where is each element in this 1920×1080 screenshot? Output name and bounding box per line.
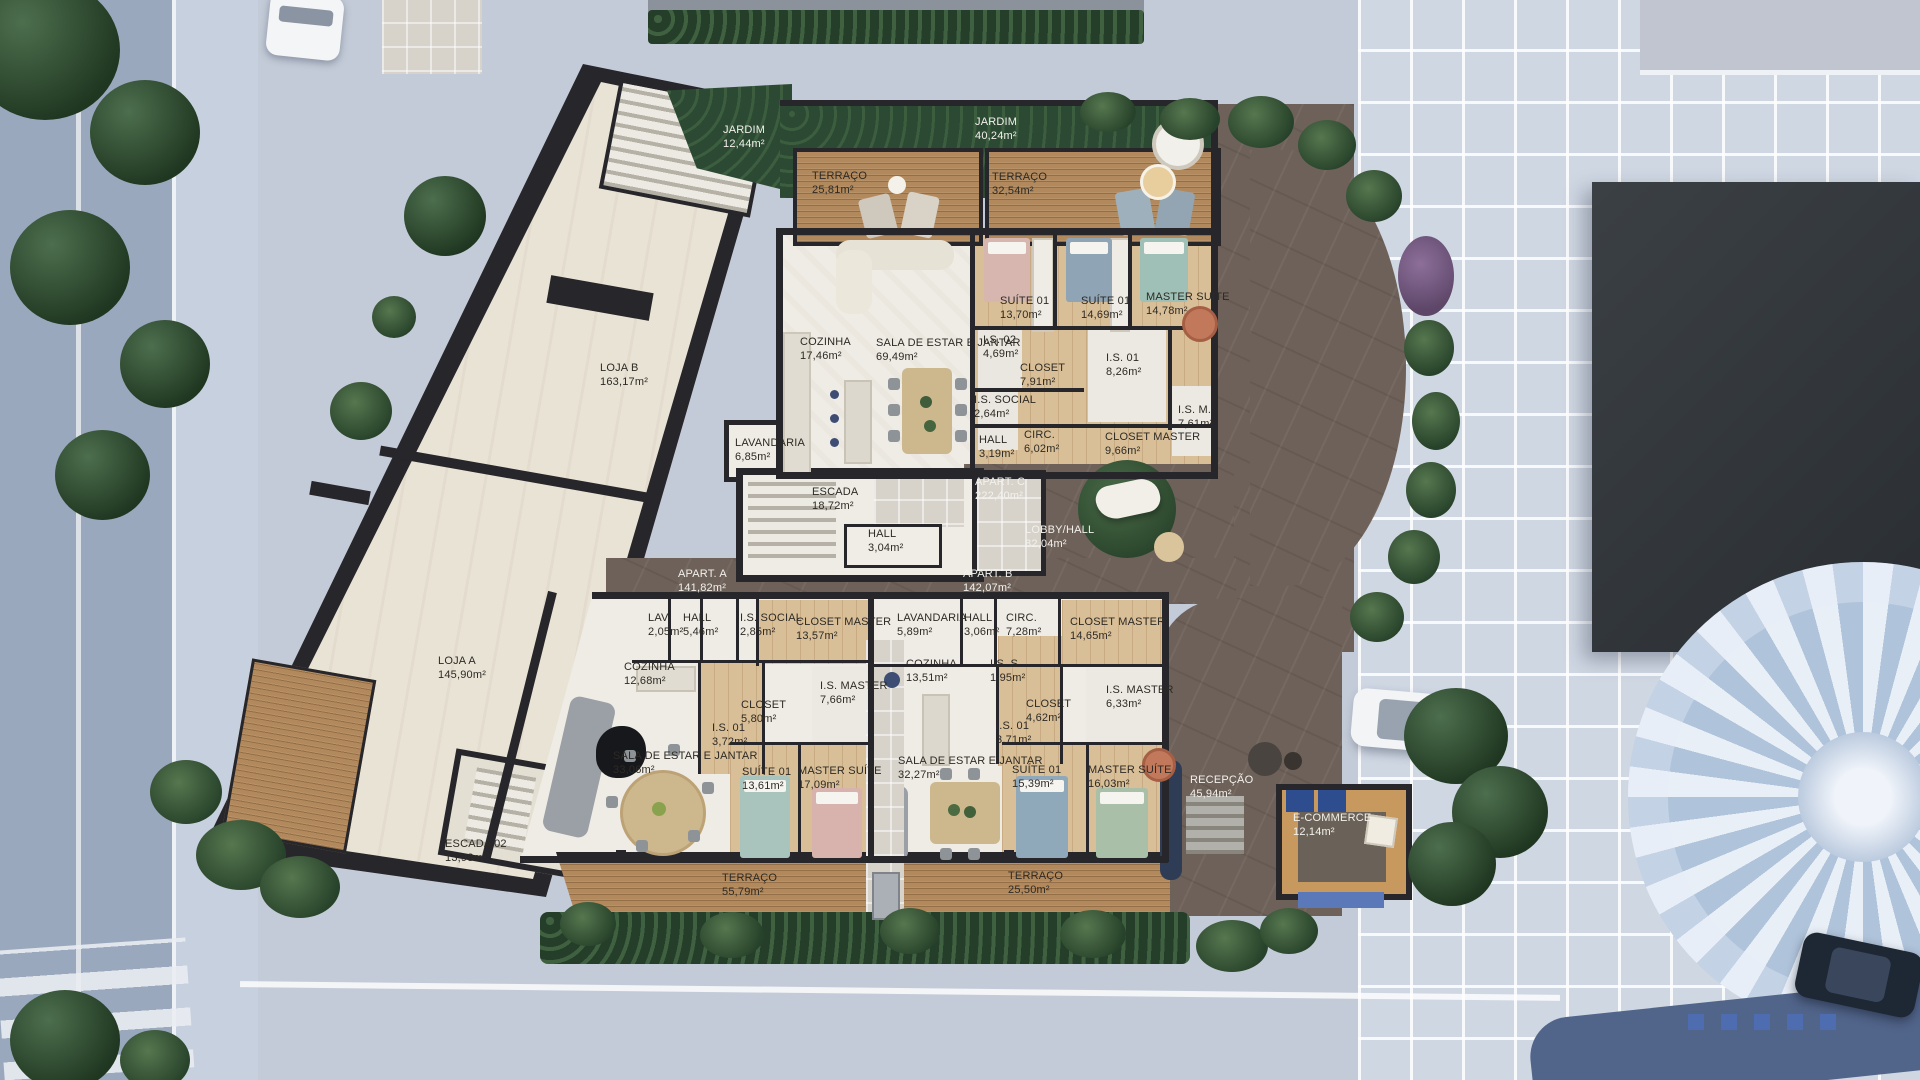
core-gray-room bbox=[874, 477, 964, 527]
deck-post bbox=[1004, 850, 1014, 862]
floor-plan-scene: JARDIM12,44m² TERRAÇO25,81m² JARDIM40,24… bbox=[0, 0, 1920, 1080]
wall bbox=[1086, 742, 1089, 860]
bush bbox=[1080, 92, 1136, 132]
bed-suite01-c bbox=[984, 238, 1030, 302]
chair bbox=[940, 848, 952, 860]
bush bbox=[1388, 530, 1440, 584]
room-label-hall-b: HALL3,06m² bbox=[964, 612, 999, 640]
bush bbox=[1412, 392, 1460, 450]
room-label-closet-master-a: CLOSET MASTER13,57m² bbox=[796, 616, 891, 644]
table-plant bbox=[948, 804, 960, 816]
tree bbox=[120, 320, 210, 408]
top-hedge bbox=[648, 10, 1144, 44]
blue-mat bbox=[1318, 790, 1346, 812]
room-label-ecommerce: E-COMMERCE12,14m² bbox=[1293, 812, 1371, 840]
car-roof bbox=[1824, 946, 1892, 1003]
bush bbox=[560, 902, 616, 946]
room-label-closet-master-b: CLOSET MASTER14,65m² bbox=[1070, 616, 1165, 644]
room-label-lavandaria-c: LAVANDARIA6,85m² bbox=[735, 437, 805, 465]
bush bbox=[1196, 920, 1268, 972]
wall bbox=[776, 228, 1218, 235]
room-label-closet-b: CLOSET4,62m² bbox=[1026, 698, 1071, 726]
chair bbox=[702, 782, 714, 794]
chair bbox=[955, 430, 967, 442]
room-label-is01-a: I.S. 013,72m² bbox=[712, 722, 747, 750]
room-label-is-master-a: I.S. MASTER7,66m² bbox=[820, 680, 888, 708]
palm-tree bbox=[1408, 822, 1496, 906]
tree bbox=[10, 210, 130, 325]
room-label-is-s-b: I.S. S.1,95m² bbox=[990, 658, 1025, 686]
room-label-sala-a: SALA DE ESTAR E JANTAR33,06m² bbox=[613, 750, 758, 778]
room-label-is01-b: I.S. 013,71m² bbox=[996, 720, 1031, 748]
chair bbox=[688, 830, 700, 842]
kitchen-island bbox=[844, 380, 872, 464]
room-label-hall-core: HALL3,04m² bbox=[868, 528, 903, 556]
bush bbox=[880, 908, 940, 954]
car-windshield bbox=[278, 5, 333, 27]
entry-mat-blue bbox=[1298, 892, 1384, 908]
bush bbox=[1298, 120, 1356, 170]
mandala-center bbox=[1798, 732, 1920, 862]
room-label-lav-a: LAV.2,05m² bbox=[648, 612, 683, 640]
room-label-terraco-top-left: TERRAÇO25,81m² bbox=[812, 170, 867, 198]
room-label-suite01b-c: SUÍTE 0114,69m² bbox=[1081, 295, 1130, 323]
bush bbox=[700, 912, 764, 958]
room-label-recepcao: RECEPÇÃO45,94m² bbox=[1190, 774, 1253, 802]
chair bbox=[888, 378, 900, 390]
unit-label-loja-a: LOJA A145,90m² bbox=[438, 655, 486, 683]
room-label-terraco-bottom-right: TERRAÇO25,50m² bbox=[1008, 870, 1063, 898]
wall bbox=[1168, 330, 1172, 430]
recepcao-chair bbox=[1284, 752, 1302, 770]
wall bbox=[736, 596, 739, 662]
room-label-hall-c: HALL3,19m² bbox=[979, 434, 1014, 462]
room-label-is01-c: I.S. 018,26m² bbox=[1106, 352, 1141, 380]
tree bbox=[10, 990, 120, 1080]
room-label-lavandaria-b: LAVANDARIA5,89m² bbox=[897, 612, 967, 640]
bush bbox=[372, 296, 416, 338]
tree bbox=[55, 430, 150, 520]
bed-suite01b-c bbox=[1066, 238, 1112, 302]
dining-table-c bbox=[902, 368, 952, 454]
bush bbox=[1404, 320, 1454, 376]
table-plant bbox=[964, 806, 976, 818]
bush bbox=[330, 382, 392, 440]
stool bbox=[830, 438, 839, 447]
room-label-is02-c: I.S. 024,69m² bbox=[983, 334, 1018, 362]
street-lane-line bbox=[76, 0, 81, 1080]
wall bbox=[798, 742, 801, 860]
bush bbox=[1350, 592, 1404, 642]
tree bbox=[90, 80, 200, 185]
table-plant bbox=[924, 420, 936, 432]
room-label-cozinha-b: COZINHA13,51m² bbox=[906, 658, 957, 686]
room-label-terraco-top-right: TERRAÇO32,54m² bbox=[992, 171, 1047, 199]
room-label-is-social-c: I.S. SOCIAL2,64m² bbox=[974, 394, 1036, 422]
roof-top-right-corner bbox=[1640, 0, 1920, 75]
chair bbox=[888, 430, 900, 442]
room-label-master-suite-c: MASTER SUÍTE14,78m² bbox=[1146, 291, 1230, 319]
room-label-jardim-right: JARDIM40,24m² bbox=[975, 116, 1017, 144]
bush bbox=[1346, 170, 1402, 222]
purple-bush bbox=[1398, 236, 1454, 316]
wall bbox=[974, 326, 1214, 330]
bush bbox=[1260, 908, 1318, 954]
unit-label-loja-b: LOJA B163,17m² bbox=[600, 362, 648, 390]
blue-mat bbox=[1286, 790, 1314, 812]
stool bbox=[830, 390, 839, 399]
room-label-cozinha-a: COZINHA12,68m² bbox=[624, 661, 675, 689]
room-label-hall-a: HALL5,46m² bbox=[683, 612, 718, 640]
room-label-is-master-b: I.S. MASTER6,33m² bbox=[1106, 684, 1174, 712]
bush bbox=[260, 856, 340, 918]
car-white-top bbox=[265, 0, 345, 62]
room-label-closet-c: CLOSET7,91m² bbox=[1020, 362, 1065, 390]
bush bbox=[150, 760, 222, 824]
wall bbox=[1053, 234, 1057, 330]
room-label-circ-b: CIRC.7,28m² bbox=[1006, 612, 1041, 640]
room-label-jardim-left: JARDIM12,44m² bbox=[723, 124, 765, 152]
room-label-is-social-a: I.S. SOCIAL2,85m² bbox=[740, 612, 802, 640]
room-label-cozinha-c: COZINHA17,46m² bbox=[800, 336, 851, 364]
bed-master-b bbox=[1096, 788, 1148, 858]
pavement-blue-dots bbox=[1688, 1014, 1838, 1030]
chair bbox=[955, 404, 967, 416]
unit-label-apart-a: APART. A141,82m² bbox=[678, 568, 727, 596]
deck-post bbox=[616, 850, 626, 862]
stairs-top-left-building bbox=[382, 0, 482, 74]
chair bbox=[888, 404, 900, 416]
table-plant bbox=[652, 802, 666, 816]
table-plant bbox=[920, 396, 932, 408]
room-label-terraco-bottom-left: TERRAÇO55,79m² bbox=[722, 872, 777, 900]
room-label-lobby-hall: LOBBY/HALL82,04m² bbox=[1025, 524, 1094, 552]
room-label-circ-c: CIRC.6,02m² bbox=[1024, 429, 1059, 457]
unit-label-apart-c: APART. C222,40m² bbox=[975, 476, 1025, 504]
room-label-suite01a-c: SUÍTE 0113,70m² bbox=[1000, 295, 1049, 323]
bush bbox=[1406, 462, 1456, 518]
room-label-escada: ESCADA18,72m² bbox=[812, 486, 858, 514]
tree bbox=[404, 176, 486, 256]
room-label-suite01-a: SUÍTE 0113,61m² bbox=[742, 766, 791, 794]
bed-master-a bbox=[812, 788, 862, 858]
sofa-chaise bbox=[836, 250, 872, 314]
bush bbox=[1228, 96, 1294, 148]
deck-round-table bbox=[1140, 164, 1176, 200]
room-label-closet-master-c: CLOSET MASTER9,66m² bbox=[1105, 431, 1200, 459]
room-label-closet-a: CLOSET5,80m² bbox=[741, 699, 786, 727]
bush bbox=[1060, 910, 1126, 958]
planter-small bbox=[1154, 532, 1184, 562]
unit-label-apart-b: APART. B142,07m² bbox=[963, 568, 1013, 596]
chair bbox=[968, 848, 980, 860]
deck-table bbox=[888, 176, 906, 194]
room-label-master-suite-a: MASTER SUÍTE17,09m² bbox=[798, 765, 882, 793]
chair bbox=[955, 378, 967, 390]
wall bbox=[1058, 596, 1061, 666]
room-label-suite01-b: SUÍTE 0115,39m² bbox=[1012, 764, 1061, 792]
room-label-is-m-c: I.S. M.7,61m² bbox=[1178, 404, 1213, 432]
bush bbox=[1160, 98, 1220, 140]
chair bbox=[636, 840, 648, 852]
room-label-escada-02: ESCADA 0213,98m² bbox=[445, 838, 507, 866]
room-label-master-suite-b: MASTER SUÍTE16,03m² bbox=[1088, 764, 1172, 792]
recepcao-steps bbox=[1186, 796, 1244, 854]
stool bbox=[830, 414, 839, 423]
recepcao-table bbox=[1248, 742, 1282, 776]
chair bbox=[606, 796, 618, 808]
